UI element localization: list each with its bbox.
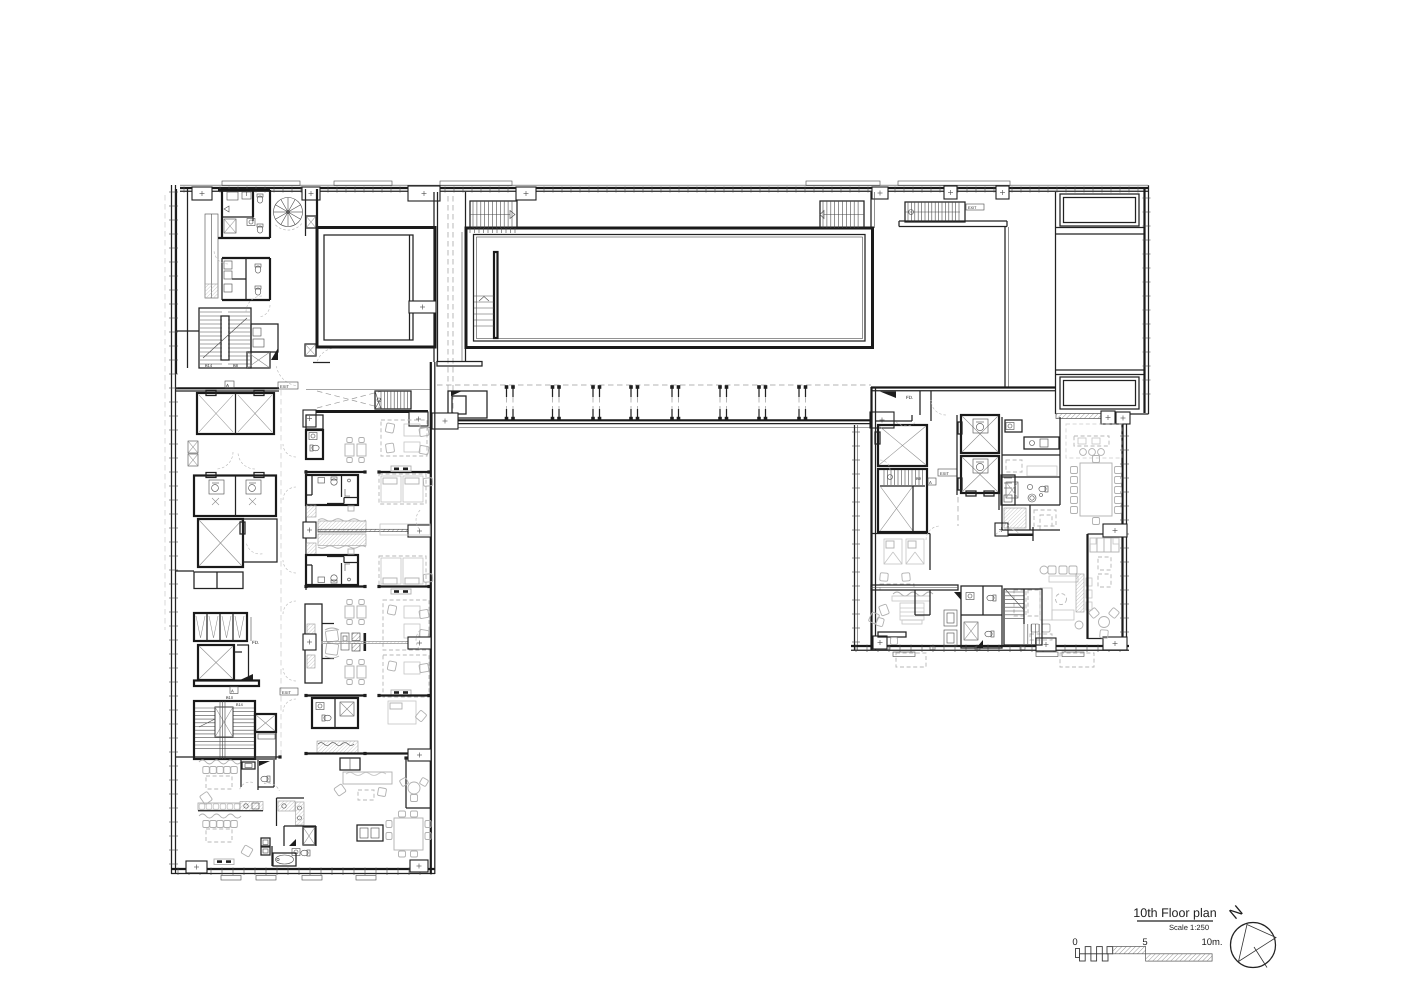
svg-text:Scale 1:250: Scale 1:250 <box>1169 923 1209 932</box>
svg-text:10m.: 10m. <box>1201 937 1222 948</box>
svg-text:EXIT: EXIT <box>282 690 291 695</box>
svg-text:FD.: FD. <box>906 395 913 400</box>
svg-text:A: A <box>226 383 229 388</box>
svg-text:A: A <box>231 689 234 694</box>
svg-text:EXIT: EXIT <box>968 206 977 210</box>
svg-text:EXIT: EXIT <box>940 471 949 476</box>
svg-text:EXIT: EXIT <box>280 384 289 389</box>
svg-text:B14: B14 <box>236 703 243 707</box>
svg-text:B9: B9 <box>916 476 922 481</box>
svg-text:B10: B10 <box>226 695 234 700</box>
svg-text:B14: B14 <box>205 363 213 368</box>
svg-text:A: A <box>929 480 932 485</box>
svg-text:10th Floor plan: 10th Floor plan <box>1133 906 1216 920</box>
svg-text:0: 0 <box>1072 937 1077 948</box>
svg-text:FD.: FD. <box>252 640 259 645</box>
svg-text:B8: B8 <box>233 363 239 368</box>
